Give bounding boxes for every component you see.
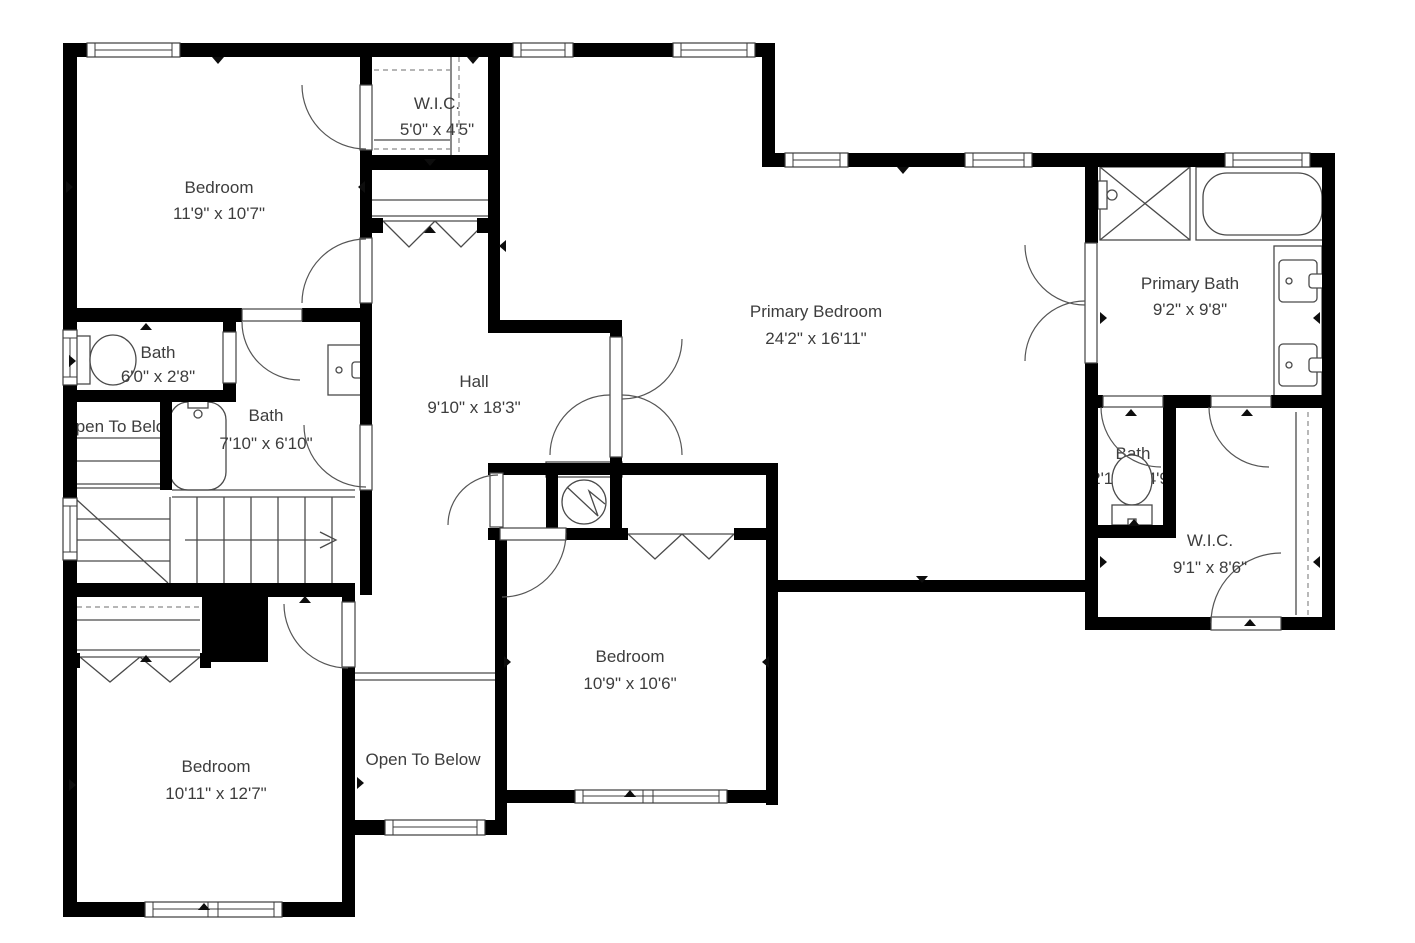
door-leaf (1211, 617, 1281, 630)
window (385, 820, 485, 835)
door-leaf (360, 238, 372, 303)
room-dims-bath-left-small: 6'0" x 2'8" (121, 367, 195, 386)
window (145, 902, 282, 917)
room-label-bath-left-small: Bath (141, 343, 176, 362)
door-leaf (342, 602, 355, 667)
room-dims-primary-bath: 9'2" x 9'8" (1153, 300, 1227, 319)
double-door-leaf (610, 337, 622, 457)
room-label-bedroom-mid: Bedroom (596, 647, 665, 666)
window (63, 498, 77, 560)
door-leaf (500, 528, 566, 540)
room-label-bedroom-tl: Bedroom (185, 178, 254, 197)
room-dims-wic-right: 9'1" x 8'6" (1173, 558, 1247, 577)
room-label-bedroom-bl: Bedroom (182, 757, 251, 776)
double-door-leaf (1085, 243, 1097, 363)
floor-plan: Open To Below Bath 2'10" x 4'9" (0, 0, 1415, 943)
window (513, 43, 573, 57)
room-label-primary-bedroom: Primary Bedroom (750, 302, 882, 321)
door-leaf (490, 473, 503, 527)
chase-solid (202, 592, 268, 662)
window (965, 153, 1032, 167)
room-dims-hall: 9'10" x 18'3" (427, 398, 520, 417)
door-leaf (242, 309, 302, 321)
door-leaf (360, 425, 372, 490)
floor-plan-canvas: Open To Below Bath 2'10" x 4'9" (0, 0, 1415, 943)
bathtub-left (170, 398, 226, 490)
room-dims-bath-left: 7'10" x 6'10" (219, 434, 312, 453)
window (87, 43, 180, 57)
room-label-hall: Hall (459, 372, 488, 391)
room-label-open-to-below-bottom: Open To Below (366, 750, 482, 769)
room-label-wic-top: W.I.C. (414, 94, 460, 113)
shower-head-icon (1098, 181, 1107, 209)
room-label-bath-left: Bath (249, 406, 284, 425)
door-leaf (360, 85, 372, 150)
window (1225, 153, 1310, 167)
room-dims-primary-bedroom: 24'2" x 16'11" (765, 329, 866, 348)
room-label-wic-right: W.I.C. (1187, 531, 1233, 550)
window (673, 43, 755, 57)
window (785, 153, 848, 167)
bathtub-primary (1196, 167, 1330, 240)
room-dims-bedroom-bl: 10'11" x 12'7" (165, 784, 266, 803)
window (575, 790, 727, 803)
door-leaf (1211, 396, 1271, 407)
room-dims-bedroom-mid: 10'9" x 10'6" (583, 674, 676, 693)
cased-opening (223, 332, 236, 383)
room-dims-wic-top: 5'0" x 4'5" (400, 120, 474, 139)
door-leaf (1103, 396, 1163, 407)
room-label-primary-bath: Primary Bath (1141, 274, 1239, 293)
room-dims-bedroom-tl: 11'9" x 10'7" (173, 204, 265, 223)
